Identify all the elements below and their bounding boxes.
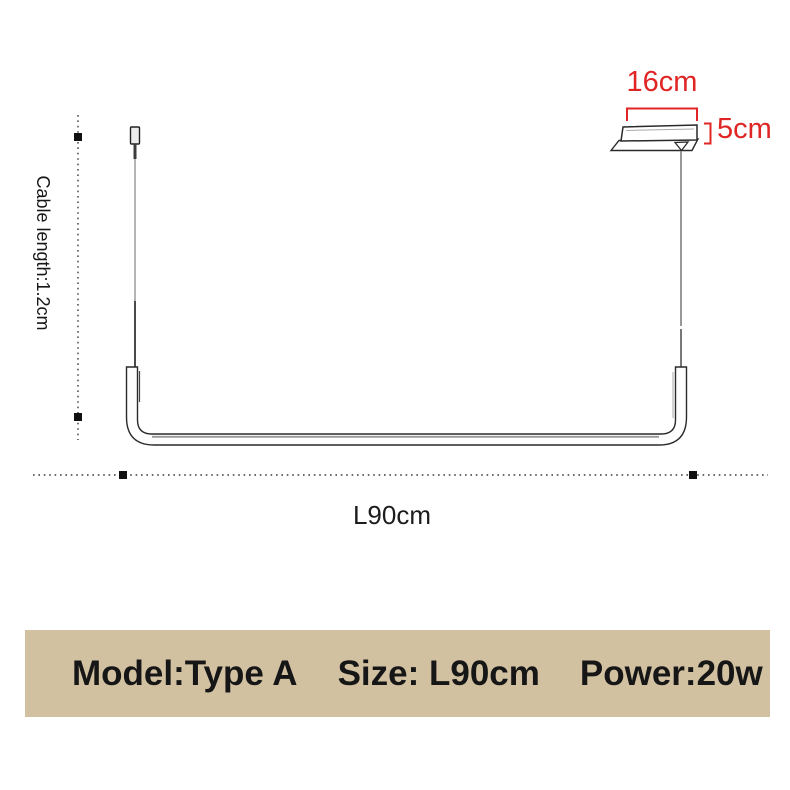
spec-power: Power:20w (580, 654, 763, 694)
cable-end-cap (131, 127, 140, 144)
width-bracket (627, 109, 697, 122)
dimension-marker-top (74, 133, 82, 141)
spec-size: Size: L90cm (338, 654, 540, 694)
canopy-height-label: 5cm (717, 113, 790, 146)
left-cable (131, 127, 140, 368)
dimension-marker-bottom (74, 413, 82, 421)
dimension-marker-right (689, 471, 697, 479)
spec-model: Model:Type A (72, 654, 298, 694)
horizontal-dimension-line (33, 471, 768, 479)
lamp-length-label: L90cm (312, 500, 472, 531)
ceiling-canopy (611, 125, 698, 151)
vertical-dimension-line (74, 115, 82, 440)
height-bracket (704, 124, 711, 144)
product-dimension-diagram: 16cm 5cm Cable length:1.2cm L90cm Model:… (0, 0, 790, 790)
canopy-width-label: 16cm (612, 66, 712, 99)
cable-length-label: Cable length:1.2cm (31, 163, 53, 343)
spec-banner: Model:Type A Size: L90cm Power:20w (25, 630, 770, 717)
dimension-marker-left (119, 471, 127, 479)
lamp-tube (127, 367, 687, 445)
